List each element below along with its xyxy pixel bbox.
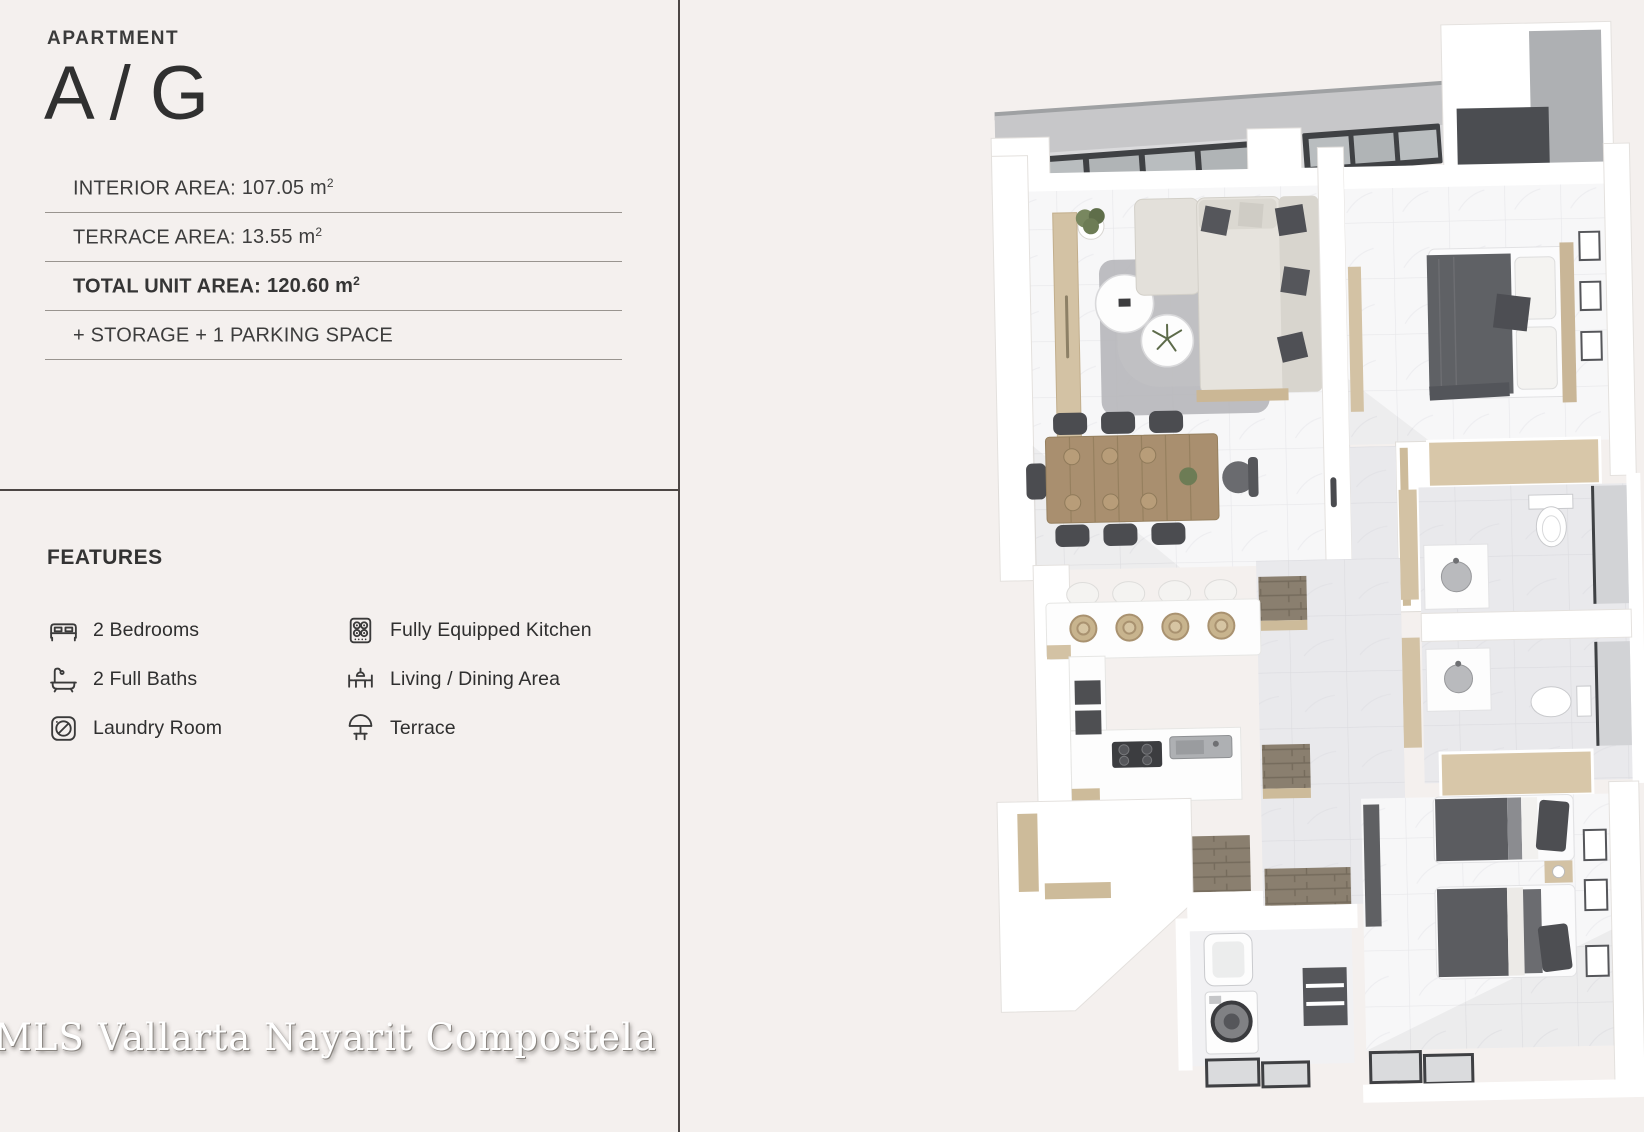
apartment-eyebrow: APARTMENT xyxy=(47,28,179,50)
nightstand xyxy=(1544,860,1572,883)
unit-title: A / G xyxy=(44,50,208,137)
vertical-panel-divider xyxy=(678,0,680,1132)
master-wall-frames xyxy=(1579,232,1602,360)
spec-row-interior-area: INTERIOR AREA:107.05 m2 xyxy=(45,164,622,213)
spec-list: INTERIOR AREA:107.05 m2 TERRACE AREA:13.… xyxy=(45,164,622,360)
watermark: MLS Vallarta Nayarit Compostela xyxy=(0,1016,657,1059)
horizontal-section-divider xyxy=(0,489,679,491)
feature-item-kitchen: Fully Equipped Kitchen xyxy=(344,606,592,655)
feature-item-living-dining: Living / Dining Area xyxy=(344,655,592,704)
kitchen-counter xyxy=(1047,641,1242,803)
bathtub-icon xyxy=(47,663,80,696)
spec-text: TOTAL UNIT AREA:120.60 m2 xyxy=(45,274,360,299)
second-bedroom xyxy=(1356,749,1644,1103)
spec-row-terrace-area: TERRACE AREA:13.55 m2 xyxy=(45,213,622,262)
feature-label: Fully Equipped Kitchen xyxy=(390,619,592,642)
feature-label: 2 Bedrooms xyxy=(93,619,199,642)
feature-item-terrace: Terrace xyxy=(344,704,592,753)
spec-text: + STORAGE + 1 PARKING SPACE xyxy=(45,323,399,348)
feature-item-baths: 2 Full Baths xyxy=(47,655,222,704)
spec-text: TERRACE AREA:13.55 m2 xyxy=(45,225,322,250)
dining-table-icon xyxy=(344,663,377,696)
kitchen xyxy=(1033,561,1264,806)
stove-icon xyxy=(344,614,377,647)
bedroom2-wall-frames xyxy=(1584,830,1609,976)
feature-label: Laundry Room xyxy=(93,717,222,740)
washing-machine xyxy=(1205,991,1258,1054)
floor-plan-rendering xyxy=(950,0,1644,1132)
feature-label: 2 Full Baths xyxy=(93,668,197,691)
spec-row-total-area: TOTAL UNIT AREA:120.60 m2 xyxy=(45,262,622,311)
stove-top xyxy=(1112,741,1163,768)
twin-bed-2 xyxy=(1435,884,1577,979)
feature-item-bedrooms: 2 Bedrooms xyxy=(47,606,222,655)
spec-row-storage-parking: + STORAGE + 1 PARKING SPACE xyxy=(45,311,622,360)
twin-bed-1 xyxy=(1433,794,1574,863)
brochure-page: APARTMENT A / G INTERIOR AREA:107.05 m2 … xyxy=(0,0,1644,1132)
bathrooms xyxy=(1398,473,1644,788)
features-title: FEATURES xyxy=(47,546,163,570)
terrace-umbrella-icon xyxy=(344,712,377,745)
washing-machine-icon xyxy=(47,712,80,745)
features-column-left: 2 Bedrooms 2 Full Baths Laundry Room xyxy=(47,606,222,753)
kitchen-sink xyxy=(1170,735,1232,758)
feature-label: Living / Dining Area xyxy=(390,668,560,691)
kitchen-island xyxy=(1046,599,1261,659)
feature-label: Terrace xyxy=(390,717,456,740)
laundry-room xyxy=(1175,904,1361,1089)
utility-sink xyxy=(1204,933,1253,986)
features-column-right: Fully Equipped Kitchen Living / Dining A… xyxy=(344,606,592,753)
dining-table xyxy=(1045,434,1219,524)
feature-item-laundry: Laundry Room xyxy=(47,704,222,753)
spec-text: INTERIOR AREA:107.05 m2 xyxy=(45,176,334,201)
master-bed xyxy=(1426,242,1577,405)
laundry-shelf xyxy=(1303,967,1348,1026)
bed-icon xyxy=(47,614,80,647)
